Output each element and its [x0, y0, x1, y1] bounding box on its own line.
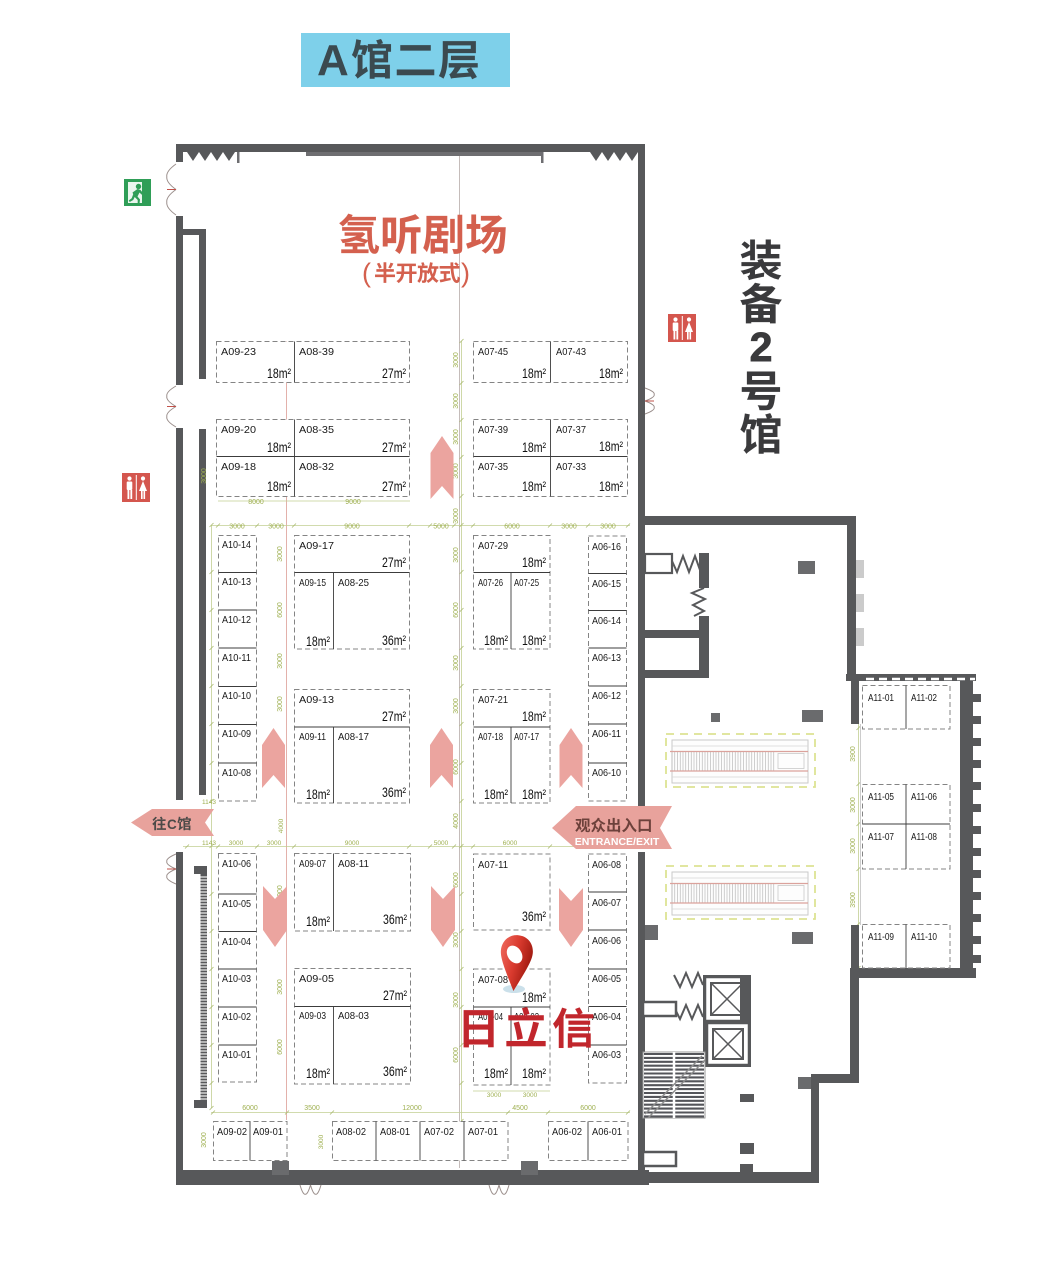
svg-text:C: C — [167, 817, 177, 832]
svg-text:12000: 12000 — [402, 1105, 422, 1112]
svg-text:6000: 6000 — [277, 1039, 284, 1055]
svg-text:18m²: 18m² — [306, 634, 330, 649]
svg-text:36m²: 36m² — [383, 912, 407, 927]
svg-text:A: A — [317, 36, 349, 85]
svg-text:A07-26: A07-26 — [478, 577, 503, 589]
svg-text:18m²: 18m² — [599, 439, 623, 454]
svg-text:3000: 3000 — [453, 508, 460, 524]
svg-text:3000: 3000 — [453, 429, 460, 445]
svg-text:36m²: 36m² — [522, 909, 546, 924]
svg-text:18m²: 18m² — [522, 787, 546, 802]
svg-text:A10-10: A10-10 — [222, 690, 251, 702]
svg-text:A08-11: A08-11 — [338, 858, 369, 870]
svg-text:6000: 6000 — [453, 759, 460, 775]
svg-text:3000: 3000 — [850, 838, 857, 854]
svg-text:A08-39: A08-39 — [299, 346, 334, 358]
svg-text:36m²: 36m² — [382, 633, 406, 648]
svg-text:A07-29: A07-29 — [478, 540, 508, 552]
svg-text:2: 2 — [750, 324, 773, 370]
svg-text:A07-43: A07-43 — [556, 346, 586, 358]
svg-text:A06-12: A06-12 — [592, 690, 621, 702]
svg-text:18m²: 18m² — [522, 990, 546, 1005]
svg-text:4500: 4500 — [512, 1105, 528, 1112]
svg-text:A07-17: A07-17 — [514, 731, 539, 743]
svg-text:A07-35: A07-35 — [478, 461, 508, 473]
svg-text:3000: 3000 — [600, 524, 616, 531]
svg-text:27m²: 27m² — [382, 555, 406, 570]
svg-text:A09-07: A09-07 — [299, 858, 326, 870]
svg-text:18m²: 18m² — [267, 479, 291, 494]
svg-text:A06-07: A06-07 — [592, 897, 621, 909]
svg-text:5000: 5000 — [434, 840, 449, 847]
svg-text:3000: 3000 — [268, 524, 284, 531]
svg-text:27m²: 27m² — [382, 366, 406, 381]
svg-text:4000: 4000 — [278, 818, 285, 833]
svg-text:3000: 3000 — [453, 655, 460, 671]
svg-text:A09-18: A09-18 — [221, 461, 256, 473]
svg-text:18m²: 18m² — [306, 914, 330, 929]
svg-text:18m²: 18m² — [522, 440, 546, 455]
svg-text:1143: 1143 — [202, 799, 216, 806]
svg-text:A09-03: A09-03 — [299, 1010, 326, 1022]
svg-text:A10-11: A10-11 — [222, 652, 251, 664]
svg-text:A10-05: A10-05 — [222, 898, 251, 910]
svg-text:A07-01: A07-01 — [468, 1126, 498, 1138]
svg-text:A06-13: A06-13 — [592, 652, 621, 664]
svg-text:6000: 6000 — [242, 1105, 258, 1112]
svg-text:A06-08: A06-08 — [592, 859, 621, 871]
svg-text:3000: 3000 — [201, 468, 208, 484]
svg-text:18m²: 18m² — [484, 633, 508, 648]
svg-text:A08-25: A08-25 — [338, 577, 369, 589]
svg-text:3000: 3000 — [453, 463, 460, 479]
svg-text:3000: 3000 — [850, 797, 857, 813]
svg-text:(: ( — [362, 258, 371, 288]
svg-text:9000: 9000 — [344, 524, 360, 531]
svg-text:18m²: 18m² — [267, 366, 291, 381]
svg-text:6000: 6000 — [453, 602, 460, 618]
svg-text:4000: 4000 — [453, 813, 460, 829]
svg-text:18m²: 18m² — [306, 1066, 330, 1081]
svg-text:27m²: 27m² — [382, 479, 406, 494]
svg-text:A09-15: A09-15 — [299, 577, 326, 589]
svg-text:A08-03: A08-03 — [338, 1010, 369, 1022]
svg-text:): ) — [461, 258, 470, 288]
svg-text:A07-21: A07-21 — [478, 694, 508, 706]
svg-text:18m²: 18m² — [306, 787, 330, 802]
svg-text:18m²: 18m² — [522, 366, 546, 381]
svg-text:A11-07: A11-07 — [868, 832, 894, 843]
svg-text:A07-02: A07-02 — [424, 1126, 454, 1138]
svg-text:18m²: 18m² — [267, 440, 291, 455]
svg-text:A11-08: A11-08 — [911, 832, 937, 843]
svg-text:27m²: 27m² — [382, 440, 406, 455]
svg-text:27m²: 27m² — [383, 988, 407, 1003]
svg-text:A10-12: A10-12 — [222, 614, 251, 626]
svg-text:3000: 3000 — [453, 352, 460, 368]
svg-text:A09-20: A09-20 — [221, 424, 256, 436]
svg-text:A10-06: A10-06 — [222, 858, 251, 870]
svg-text:36m²: 36m² — [382, 785, 406, 800]
svg-text:A09-23: A09-23 — [221, 346, 256, 358]
svg-text:A11-06: A11-06 — [911, 792, 937, 803]
svg-text:A07-33: A07-33 — [556, 461, 586, 473]
svg-text:3000: 3000 — [267, 840, 282, 847]
svg-text:A09-01: A09-01 — [253, 1126, 283, 1138]
svg-text:A06-11: A06-11 — [592, 728, 621, 740]
svg-text:6000: 6000 — [503, 840, 518, 847]
svg-text:A07-37: A07-37 — [556, 424, 586, 436]
svg-text:A06-06: A06-06 — [592, 935, 621, 947]
svg-text:A08-35: A08-35 — [299, 424, 334, 436]
svg-text:A11-09: A11-09 — [868, 932, 894, 943]
svg-text:A08-32: A08-32 — [299, 461, 334, 473]
svg-text:A07-45: A07-45 — [478, 346, 508, 358]
svg-text:3000: 3000 — [277, 696, 284, 712]
svg-text:A10-04: A10-04 — [222, 936, 251, 948]
svg-text:3000: 3000 — [201, 1132, 208, 1148]
svg-text:3000: 3000 — [318, 1134, 325, 1149]
svg-text:A11-05: A11-05 — [868, 792, 894, 803]
svg-text:3000: 3000 — [229, 840, 244, 847]
svg-text:3900: 3900 — [850, 746, 857, 762]
svg-text:A07-18: A07-18 — [478, 731, 503, 743]
svg-text:A10-09: A10-09 — [222, 728, 251, 740]
svg-text:A06-02: A06-02 — [552, 1126, 582, 1138]
svg-text:3000: 3000 — [523, 1092, 538, 1099]
svg-text:3900: 3900 — [850, 892, 857, 908]
svg-text:9000: 9000 — [345, 840, 360, 847]
svg-text:1143: 1143 — [202, 840, 216, 847]
svg-text:A08-17: A08-17 — [338, 731, 369, 743]
svg-text:27m²: 27m² — [382, 709, 406, 724]
svg-text:3000: 3000 — [277, 979, 284, 995]
svg-text:A06-14: A06-14 — [592, 615, 621, 627]
svg-text:6000: 6000 — [277, 602, 284, 618]
svg-text:18m²: 18m² — [484, 787, 508, 802]
svg-text:A10-02: A10-02 — [222, 1011, 251, 1023]
svg-text:3000: 3000 — [453, 393, 460, 409]
svg-text:6000: 6000 — [453, 1047, 460, 1063]
svg-text:18m²: 18m² — [599, 479, 623, 494]
svg-text:18m²: 18m² — [522, 479, 546, 494]
svg-text:3000: 3000 — [561, 524, 577, 531]
svg-text:A07-25: A07-25 — [514, 577, 539, 589]
svg-text:8000: 8000 — [248, 499, 264, 506]
svg-text:18m²: 18m² — [522, 1066, 546, 1081]
svg-text:A11-02: A11-02 — [911, 693, 937, 704]
svg-text:3000: 3000 — [453, 932, 460, 948]
svg-text:A11-10: A11-10 — [911, 932, 937, 943]
svg-text:3500: 3500 — [304, 1105, 320, 1112]
svg-text:A07-11: A07-11 — [478, 859, 508, 871]
svg-text:36m²: 36m² — [383, 1064, 407, 1079]
svg-text:18m²: 18m² — [522, 555, 546, 570]
svg-text:A09-17: A09-17 — [299, 540, 334, 552]
svg-text:A08-02: A08-02 — [336, 1126, 366, 1138]
svg-text:A09-05: A09-05 — [299, 973, 334, 985]
svg-text:A10-13: A10-13 — [222, 576, 251, 588]
svg-text:A06-16: A06-16 — [592, 541, 621, 553]
svg-text:A10-08: A10-08 — [222, 767, 251, 779]
svg-text:18m²: 18m² — [599, 366, 623, 381]
svg-text:A09-02: A09-02 — [217, 1126, 247, 1138]
svg-text:3000: 3000 — [487, 1092, 502, 1099]
svg-text:A06-03: A06-03 — [592, 1049, 621, 1061]
svg-text:A10-03: A10-03 — [222, 973, 251, 985]
svg-text:A06-10: A06-10 — [592, 767, 621, 779]
svg-text:5000: 5000 — [433, 524, 449, 531]
svg-text:A09-13: A09-13 — [299, 694, 334, 706]
svg-text:A10-14: A10-14 — [222, 539, 251, 551]
svg-text:3000: 3000 — [229, 524, 245, 531]
svg-text:A08-01: A08-01 — [380, 1126, 410, 1138]
svg-text:18m²: 18m² — [522, 633, 546, 648]
svg-text:A06-04: A06-04 — [592, 1011, 621, 1023]
svg-text:A09-11: A09-11 — [299, 731, 326, 743]
svg-text:6000: 6000 — [453, 872, 460, 888]
svg-text:18m²: 18m² — [484, 1066, 508, 1081]
svg-text:6000: 6000 — [580, 1105, 596, 1112]
svg-text:3000: 3000 — [277, 653, 284, 669]
svg-text:9000: 9000 — [345, 499, 361, 506]
svg-text:A11-01: A11-01 — [868, 693, 894, 704]
svg-text:3000: 3000 — [453, 547, 460, 563]
svg-text:3000: 3000 — [453, 698, 460, 714]
svg-text:A10-01: A10-01 — [222, 1049, 251, 1061]
svg-text:ENTRANCE/EXIT: ENTRANCE/EXIT — [575, 836, 660, 848]
svg-text:A06-15: A06-15 — [592, 578, 621, 590]
svg-text:A07-08: A07-08 — [478, 974, 508, 986]
svg-text:A06-01: A06-01 — [592, 1126, 622, 1138]
svg-text:3000: 3000 — [277, 546, 284, 562]
svg-text:6000: 6000 — [504, 524, 520, 531]
svg-text:A07-39: A07-39 — [478, 424, 508, 436]
svg-text:A06-05: A06-05 — [592, 973, 621, 985]
svg-text:3000: 3000 — [453, 992, 460, 1008]
svg-text:18m²: 18m² — [522, 709, 546, 724]
